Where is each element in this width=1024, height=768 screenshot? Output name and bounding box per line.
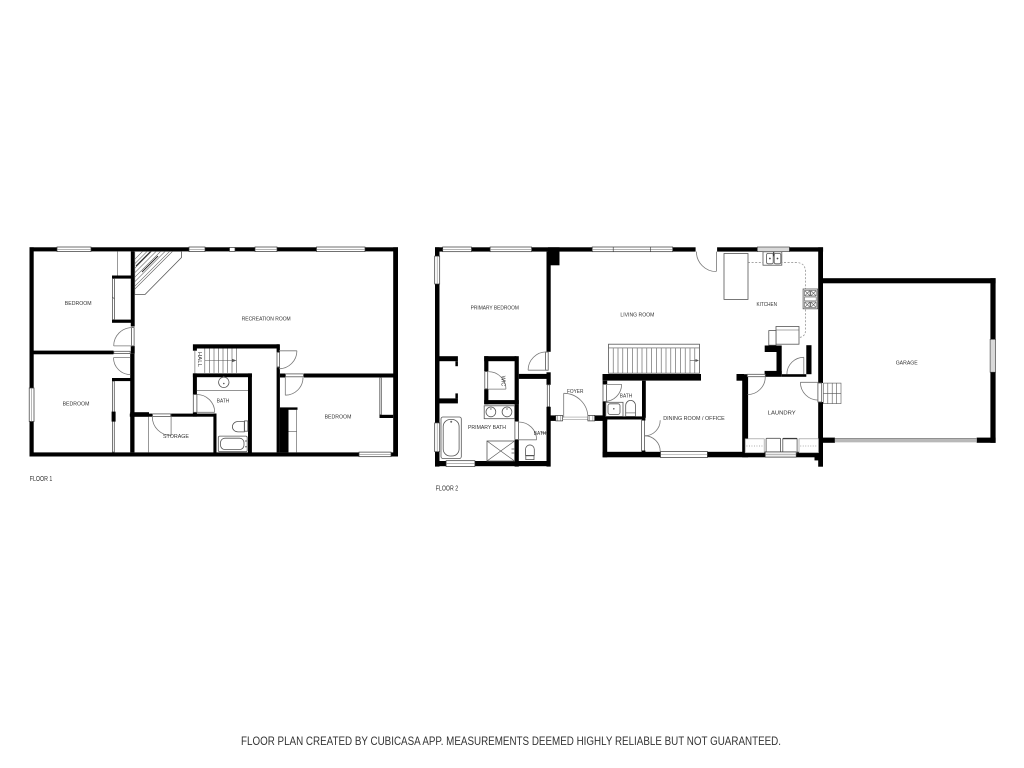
svg-text:BATH: BATH xyxy=(620,394,633,400)
svg-text:BATH: BATH xyxy=(534,431,547,437)
svg-text:BEDROOM: BEDROOM xyxy=(325,414,352,420)
svg-text:FOYER: FOYER xyxy=(567,389,584,395)
svg-text:BEDROOM: BEDROOM xyxy=(65,301,92,307)
svg-text:STORAGE: STORAGE xyxy=(163,434,189,440)
svg-text:KITCHEN: KITCHEN xyxy=(757,302,778,308)
svg-text:LIVING ROOM: LIVING ROOM xyxy=(620,313,654,319)
svg-text:WIC: WIC xyxy=(500,376,506,387)
svg-text:GARAGE: GARAGE xyxy=(896,360,918,366)
svg-text:DINING ROOM / OFFICE: DINING ROOM / OFFICE xyxy=(663,416,725,422)
svg-text:BATH: BATH xyxy=(217,399,230,405)
svg-text:PRIMARY BEDROOM: PRIMARY BEDROOM xyxy=(471,306,519,312)
svg-text:LAUNDRY: LAUNDRY xyxy=(768,411,796,417)
svg-text:PRIMARY BATH: PRIMARY BATH xyxy=(468,425,506,431)
svg-text:HALL: HALL xyxy=(196,352,202,368)
svg-text:FLOOR 2: FLOOR 2 xyxy=(436,484,459,493)
svg-text:FLOOR 1: FLOOR 1 xyxy=(30,474,53,483)
svg-text:RECREATION ROOM: RECREATION ROOM xyxy=(242,317,291,323)
svg-text:FLOOR PLAN CREATED BY CUBICASA: FLOOR PLAN CREATED BY CUBICASA APP. MEAS… xyxy=(241,734,781,748)
svg-text:BEDROOM: BEDROOM xyxy=(63,401,90,407)
